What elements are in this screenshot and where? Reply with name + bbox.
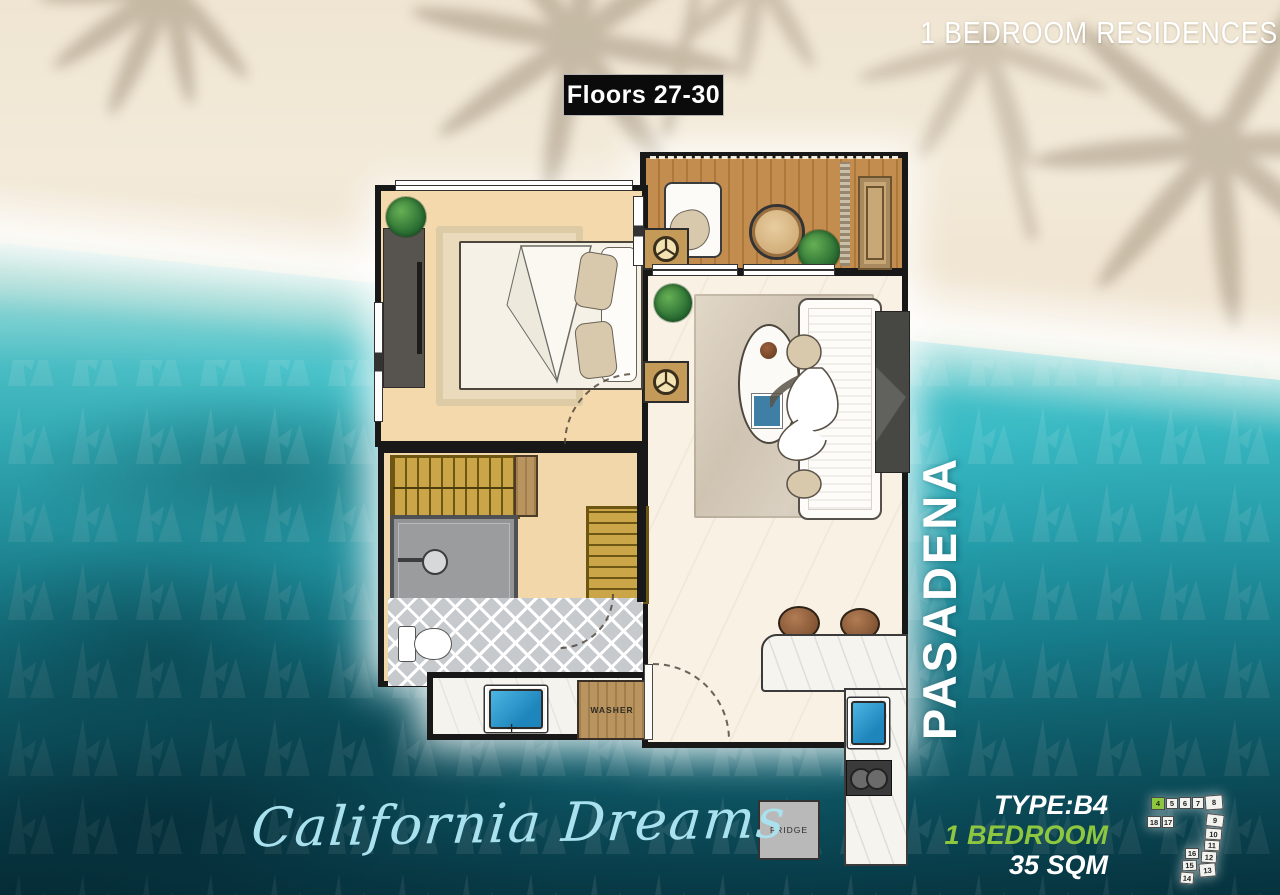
entrance-door-leaf — [644, 664, 653, 740]
bedroom — [375, 185, 648, 447]
keyplan-unit-15: 15 — [1182, 860, 1197, 872]
cooktop — [846, 760, 892, 796]
hall-wall — [637, 447, 646, 602]
burner — [866, 768, 888, 790]
unit-type: TYPE:B4 — [944, 790, 1108, 820]
unit-bedrooms: 1 BEDROOM — [944, 820, 1108, 850]
bedroom-side-window — [374, 302, 383, 422]
wardrobe-side-cabinet — [514, 455, 538, 517]
balcony-railing — [650, 156, 898, 159]
key-plan: 456781817910111612151314 — [1142, 789, 1280, 893]
keyplan-unit-14: 14 — [1180, 871, 1195, 884]
keyplan-unit-17: 17 — [1162, 816, 1174, 828]
washer-label: WASHER — [590, 705, 633, 715]
keyplan-unit-4: 4 — [1151, 797, 1165, 810]
living-balcony-window — [743, 264, 835, 276]
ac-zone-divider — [840, 162, 850, 266]
balcony-round-table — [749, 204, 805, 260]
hallway-bathroom-block — [378, 447, 645, 687]
floor-plan: FRIDGE — [375, 152, 908, 748]
keyplan-unit-11: 11 — [1204, 840, 1221, 852]
shower-head — [422, 549, 448, 575]
washer-closet: WASHER — [577, 680, 647, 740]
wardrobe — [390, 455, 520, 519]
bedroom-tv-console — [383, 228, 425, 388]
project-tagline: California Dreams — [249, 788, 760, 860]
balcony-sliding-door — [652, 264, 738, 276]
keyplan-unit-5: 5 — [1166, 798, 1178, 809]
building-name: PASADENA — [912, 448, 974, 748]
ac-condenser-unit — [858, 176, 892, 270]
living-room: FRIDGE — [642, 270, 908, 748]
shower — [390, 515, 518, 607]
floors-badge: Floors 27-30 — [563, 74, 724, 116]
keyplan-unit-16: 16 — [1185, 848, 1199, 859]
bed-pillow — [574, 320, 619, 380]
living-tv-unit — [875, 311, 910, 473]
marketing-floorplan-page: FRIDGE — [0, 0, 1280, 895]
unit-specs: TYPE:B4 1 BEDROOM 35 SQM — [944, 790, 1108, 880]
bedroom-plant — [386, 197, 426, 237]
bed — [459, 241, 643, 390]
keyplan-unit-18: 18 — [1147, 816, 1161, 828]
kitchen-sink — [851, 701, 886, 745]
vanity-faucet: ✛ — [507, 722, 516, 735]
toilet — [414, 628, 452, 660]
keyplan-unit-8: 8 — [1204, 794, 1223, 810]
keyplan-unit-9: 9 — [1205, 813, 1224, 828]
keyplan-unit-6: 6 — [1179, 797, 1191, 809]
kitchen-counter — [761, 634, 908, 692]
table-lamp — [652, 235, 680, 263]
unit-area: 35 SQM — [944, 850, 1108, 880]
keyplan-unit-13: 13 — [1198, 862, 1216, 877]
bedroom-window — [395, 180, 633, 191]
floors-badge-label: Floors 27-30 — [567, 81, 720, 110]
bedroom-balcony-window — [633, 196, 644, 266]
living-plant — [654, 284, 692, 322]
keyplan-unit-7: 7 — [1192, 797, 1204, 809]
vanity-block: ✛ WASHER — [427, 672, 648, 740]
keyplan-unit-10: 10 — [1205, 827, 1223, 840]
person-figure — [770, 316, 862, 506]
page-title: 1 BEDROOM RESIDENCES — [920, 15, 1278, 51]
table-lamp — [652, 368, 680, 396]
nightstand — [643, 361, 689, 403]
